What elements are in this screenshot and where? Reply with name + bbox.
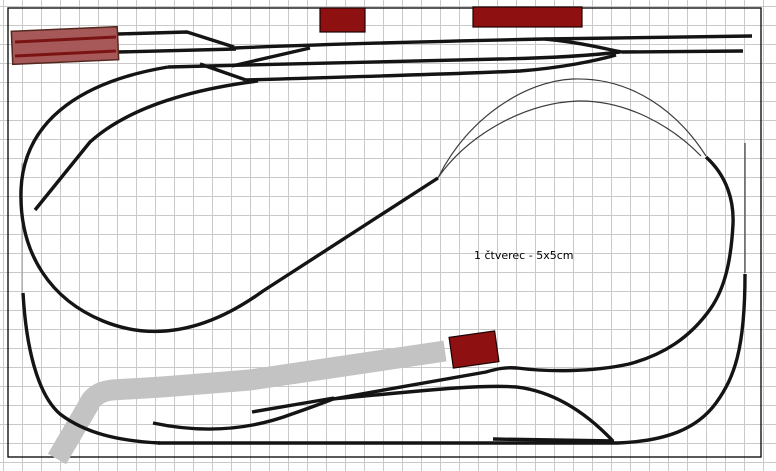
- track-main: [35, 81, 258, 210]
- building-top-small: [320, 8, 365, 32]
- track-main: [493, 439, 614, 441]
- building-bottom: [449, 331, 499, 368]
- track-main: [118, 49, 236, 52]
- building-layer: [11, 7, 582, 368]
- track-plan-drawing: 1 čtverec - 5x5cm: [0, 0, 776, 471]
- track-main: [21, 67, 438, 331]
- track-main: [545, 39, 743, 52]
- hidden-track: [437, 101, 701, 179]
- track-main: [333, 386, 612, 440]
- track-plan-canvas: 1 čtverec - 5x5cm: [0, 0, 776, 471]
- track-main: [246, 55, 616, 80]
- track-main: [234, 36, 752, 48]
- hidden-track-layer: [437, 79, 745, 273]
- station-building-main: [11, 27, 118, 65]
- scale-label: 1 čtverec - 5x5cm: [474, 249, 573, 262]
- track-main: [118, 32, 234, 47]
- building-top-long: [473, 7, 582, 27]
